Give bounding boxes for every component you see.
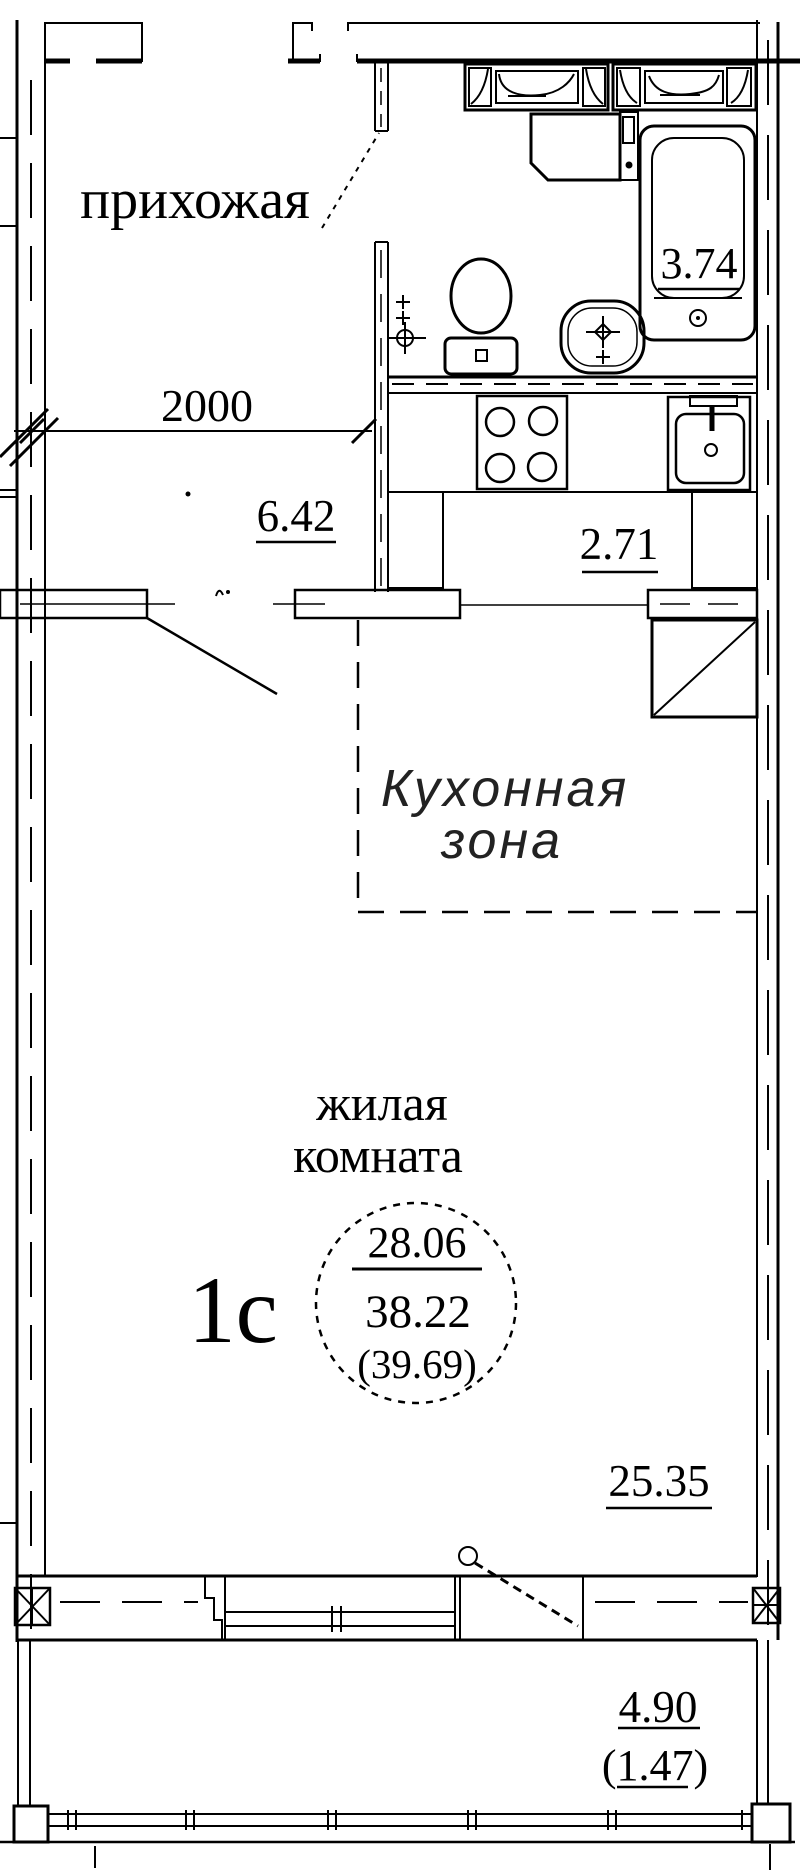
unit-area-living: 28.06 xyxy=(368,1218,467,1267)
pilaster-hatched-left xyxy=(15,1588,50,1625)
stove xyxy=(477,396,567,489)
bathroom-bottom-wall xyxy=(388,377,757,384)
bathtub xyxy=(640,126,755,340)
towel-rail-riser xyxy=(388,295,426,354)
floor-plan-drawing: прихожая 2000 6.42 3.74 2.71 Кухонная зо… xyxy=(0,0,800,1871)
balcony-area: 4.90 xyxy=(619,1682,698,1732)
toilet xyxy=(445,259,517,374)
bathroom-sink xyxy=(561,301,644,373)
vent-block-left xyxy=(465,64,608,110)
vestibule-partition xyxy=(375,63,388,131)
right-wall xyxy=(757,20,778,1640)
kitchen-sink xyxy=(668,396,750,490)
window xyxy=(225,1576,455,1640)
left-wall xyxy=(0,20,45,1642)
unit-area-total: 38.22 xyxy=(365,1286,471,1338)
dimension-2000: 2000 xyxy=(161,380,253,431)
living-room-label-line2: комната xyxy=(293,1127,463,1183)
living-room-label-line1: жилая xyxy=(315,1075,447,1131)
bathroom-door xyxy=(620,112,638,180)
kitchen-zone-label-line2: зона xyxy=(440,812,563,870)
unit-area-with-balcony: (39.69) xyxy=(357,1341,477,1387)
kitchen-niche-area: 2.71 xyxy=(580,519,659,569)
cabinet-with-diagonal xyxy=(652,620,757,717)
floor-plan-canvas: прихожая 2000 6.42 3.74 2.71 Кухонная зо… xyxy=(0,0,800,1871)
hallway-leader-line xyxy=(322,133,379,228)
bathroom-partition xyxy=(375,242,388,592)
vent-block-right xyxy=(613,64,756,110)
unit-code: 1с xyxy=(188,1257,278,1363)
hallway-area: 6.42 xyxy=(257,491,336,541)
kitchen-zone-label-line1: Кухонная xyxy=(381,760,629,818)
pilaster-hatched-right xyxy=(753,1588,780,1623)
balcony-door xyxy=(459,1547,578,1640)
bottom-wall xyxy=(17,1576,757,1640)
living-room-area: 25.35 xyxy=(608,1456,709,1506)
balcony-area-coefficient: (1.47) xyxy=(602,1741,708,1790)
top-wall xyxy=(45,23,800,62)
washing-machine xyxy=(531,114,620,180)
bathroom-area: 3.74 xyxy=(661,239,738,288)
hallway-label: прихожая xyxy=(80,169,310,231)
